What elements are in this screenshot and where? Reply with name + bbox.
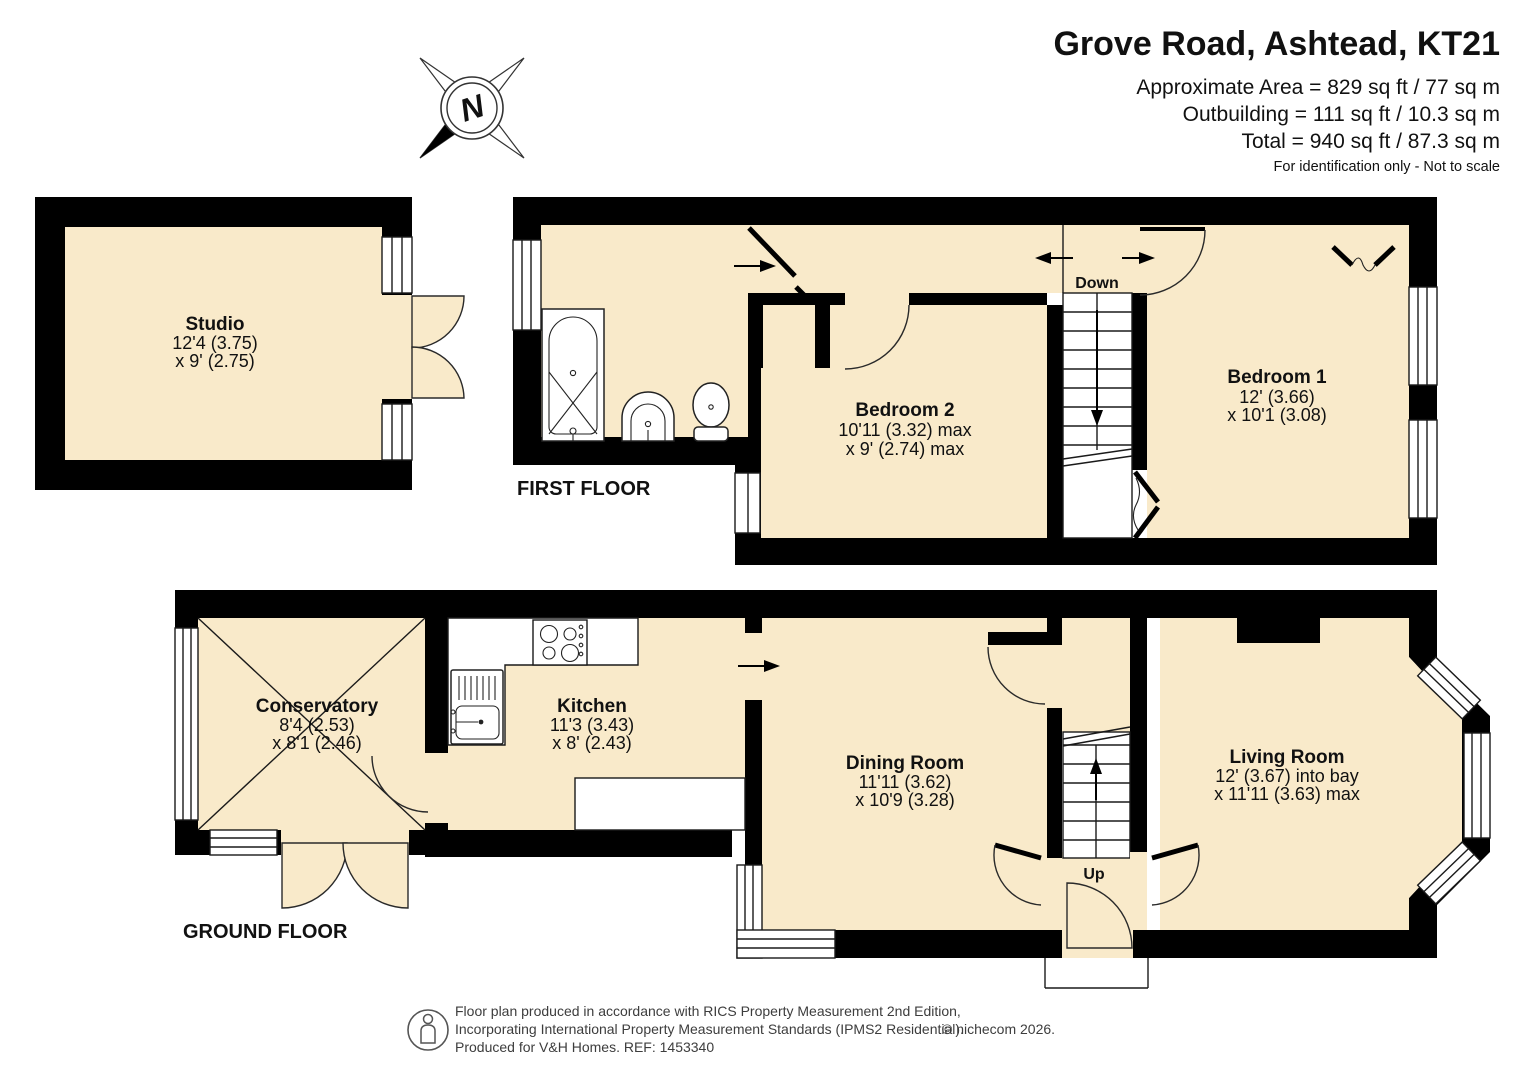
footer-line-2: Incorporating International Property Mea… xyxy=(455,1021,964,1037)
room-dim: x 9' (2.74) max xyxy=(846,439,964,459)
porch-outline xyxy=(1045,958,1148,988)
room-label-bedroom1: Bedroom 1 xyxy=(1227,367,1327,388)
stairs-down-label: Down xyxy=(1075,275,1119,292)
room-dim: x 8' (2.43) xyxy=(552,733,631,753)
footer-line-3: Produced for V&H Homes. REF: 1453340 xyxy=(455,1039,714,1055)
room-dim: x 8'1 (2.46) xyxy=(272,733,361,753)
room-dim: x 9' (2.75) xyxy=(175,351,254,371)
room-label-dining: Dining Room xyxy=(846,753,964,774)
room-label-living: Living Room xyxy=(1229,747,1344,768)
room-label-bedroom2: Bedroom 2 xyxy=(855,400,954,421)
kitchen-sink-icon xyxy=(451,670,503,744)
ground-floor-label: GROUND FLOOR xyxy=(183,921,348,943)
bathtub-icon xyxy=(542,309,604,441)
studio-window xyxy=(382,237,412,293)
area-line: Outbuilding = 111 sq ft / 10.3 sq m xyxy=(1183,103,1500,126)
studio-double-door xyxy=(412,296,464,398)
room-dim: 11'3 (3.43) xyxy=(550,715,634,735)
hob-icon xyxy=(533,620,587,665)
stairs-up-label: Up xyxy=(1083,866,1105,883)
sink-icon xyxy=(622,392,674,441)
living-room-chimney xyxy=(1237,618,1320,643)
page-title: Grove Road, Ashtead, KT21 xyxy=(1053,25,1500,63)
stairs-up xyxy=(1063,727,1130,858)
floorplan-page: N xyxy=(0,0,1527,1080)
conservatory-double-door xyxy=(282,843,408,908)
room-dim: 12' (3.67) into bay xyxy=(1215,766,1359,786)
room-dim: x 10'1 (3.08) xyxy=(1227,405,1327,425)
floorplan-drawing: N xyxy=(0,0,1527,1080)
room-dim: 11'11 (3.62) xyxy=(859,772,952,792)
bedroom2-side-window xyxy=(735,473,760,533)
bathroom-window xyxy=(513,240,541,330)
stairs-down xyxy=(1063,293,1132,538)
toilet-icon xyxy=(693,383,729,441)
area-line: Total = 940 sq ft / 87.3 sq m xyxy=(1241,130,1500,153)
footer-copyright: © nichecom 2026. xyxy=(942,1021,1055,1037)
room-dim: 12'4 (3.75) xyxy=(172,333,258,353)
area-line: Approximate Area = 829 sq ft / 77 sq m xyxy=(1136,76,1500,99)
conservatory-window xyxy=(210,830,277,855)
room-dim: x 11'11 (3.63) max xyxy=(1214,784,1360,804)
room-dim: 10'11 (3.32) max xyxy=(838,420,971,440)
bedroom1-window xyxy=(1409,420,1437,518)
room-label-kitchen: Kitchen xyxy=(557,696,627,717)
bedroom1-window xyxy=(1409,287,1437,385)
room-label-conservatory: Conservatory xyxy=(256,696,379,717)
room-label-studio: Studio xyxy=(185,314,244,335)
footer: Floor plan produced in accordance with R… xyxy=(408,1003,1055,1055)
compass-north-icon: N xyxy=(420,58,524,158)
person-icon xyxy=(408,1010,448,1050)
kitchen-recess xyxy=(575,778,745,830)
first-floor-label: FIRST FLOOR xyxy=(517,478,651,500)
room-dim: 8'4 (2.53) xyxy=(279,715,354,735)
footer-line-1: Floor plan produced in accordance with R… xyxy=(455,1003,961,1019)
scale-disclaimer: For identification only - Not to scale xyxy=(1274,159,1500,175)
room-dim: x 10'9 (3.28) xyxy=(855,790,955,810)
title-block: Grove Road, Ashtead, KT21 Approximate Ar… xyxy=(1053,25,1500,175)
room-dim: 12' (3.66) xyxy=(1239,387,1314,407)
conservatory-window xyxy=(175,628,198,820)
studio-window xyxy=(382,404,412,460)
